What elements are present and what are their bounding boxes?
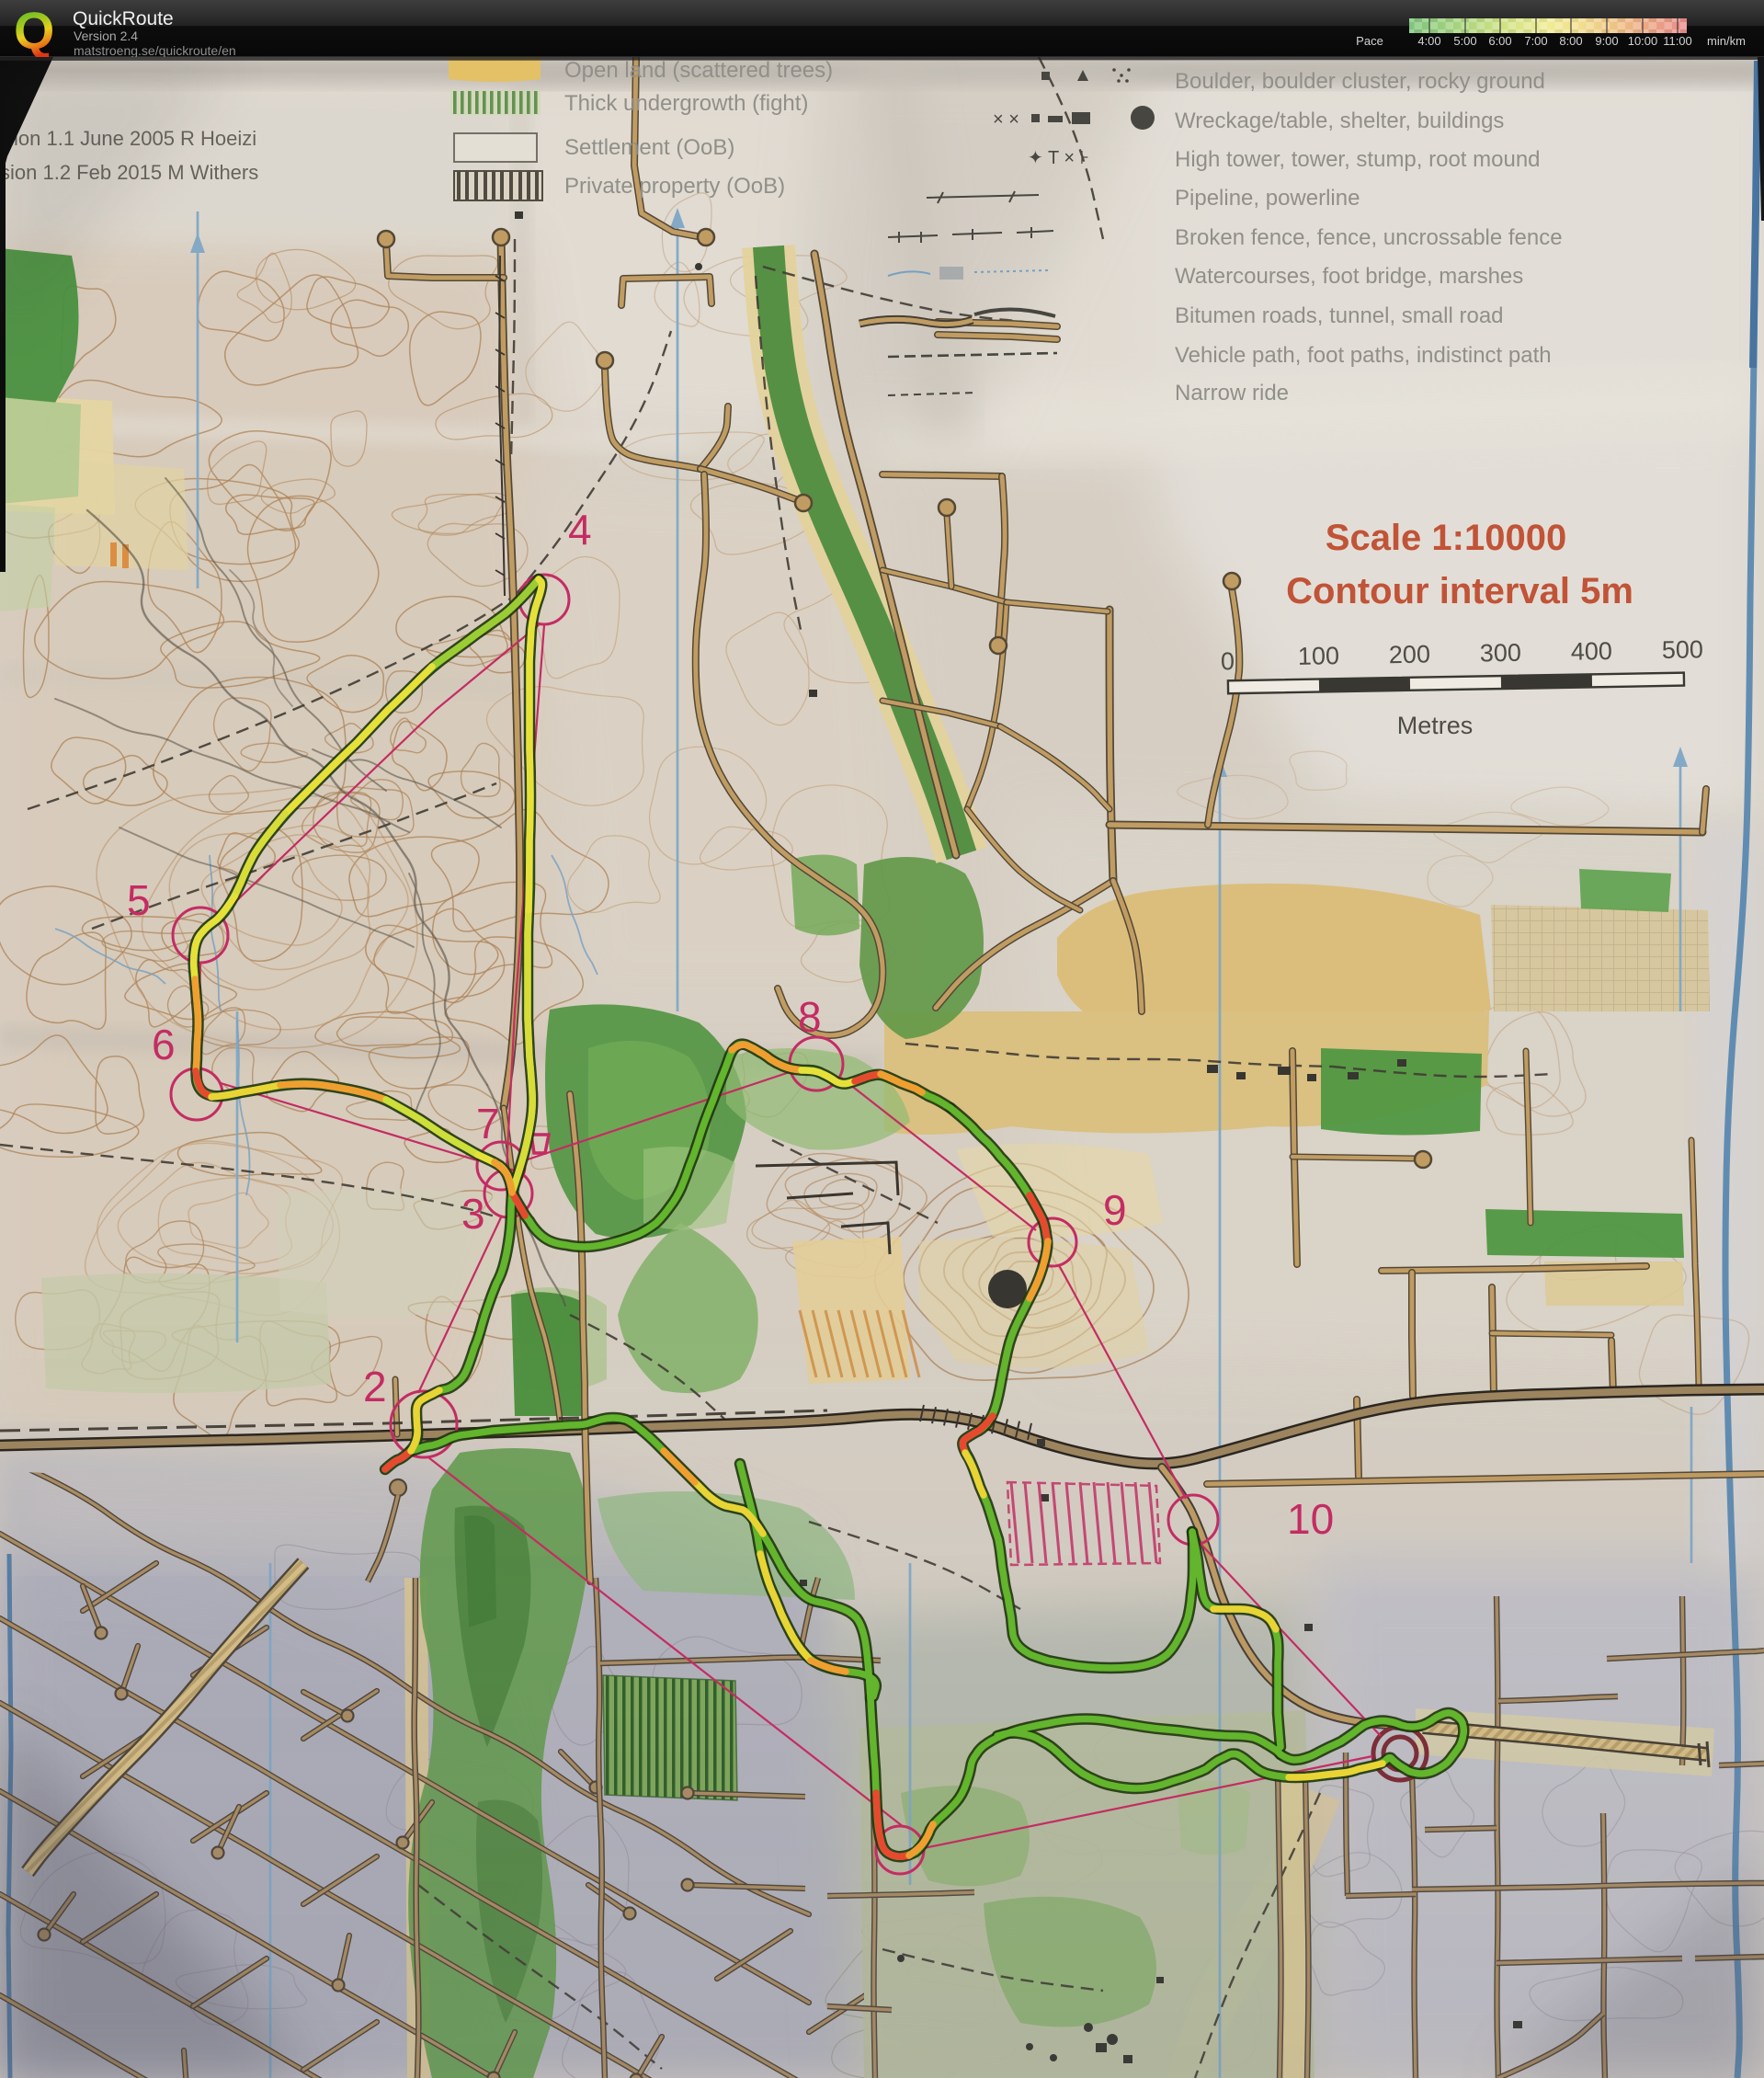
svg-text:3: 3 (461, 1190, 485, 1238)
svg-text:Version 2.4: Version 2.4 (74, 29, 138, 43)
svg-text:Q: Q (14, 2, 54, 57)
svg-text:7: 7 (476, 1100, 500, 1147)
svg-text:11:00: 11:00 (1663, 34, 1692, 48)
svg-text:2: 2 (363, 1363, 387, 1410)
svg-text:8:00: 8:00 (1559, 34, 1582, 48)
svg-text:10: 10 (1287, 1495, 1334, 1543)
svg-text:9:00: 9:00 (1595, 34, 1618, 48)
svg-text:Pace: Pace (1356, 34, 1383, 48)
svg-text:7:00: 7:00 (1524, 34, 1547, 48)
svg-text:9: 9 (1103, 1186, 1127, 1234)
svg-text:10:00: 10:00 (1628, 34, 1658, 48)
svg-text:5:00: 5:00 (1453, 34, 1476, 48)
svg-text:min/km: min/km (1707, 34, 1746, 48)
svg-text:6: 6 (152, 1021, 176, 1068)
svg-text:matstroeng.se/quickroute/en: matstroeng.se/quickroute/en (74, 43, 236, 57)
svg-text:QuickRoute: QuickRoute (73, 8, 174, 29)
svg-text:8: 8 (798, 993, 822, 1041)
svg-text:4: 4 (568, 506, 592, 554)
svg-text:4:00: 4:00 (1417, 34, 1440, 48)
svg-text:6:00: 6:00 (1488, 34, 1511, 48)
svg-text:5: 5 (127, 876, 151, 924)
